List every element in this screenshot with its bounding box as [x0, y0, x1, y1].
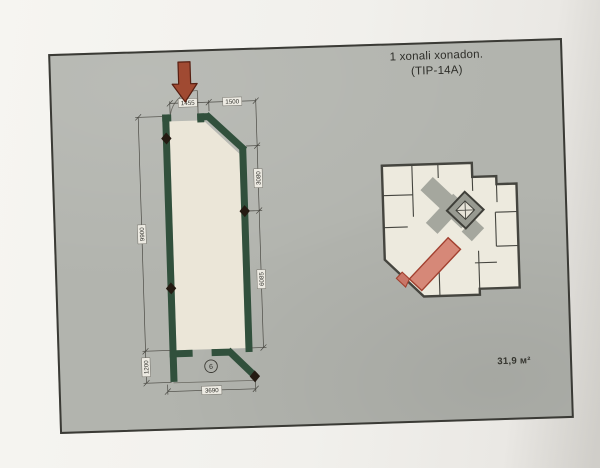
area-label: 31,9 м² — [472, 354, 556, 368]
dimension-label-bottom: 3690 — [205, 387, 220, 394]
photo-background: 1 xonali xonadon. (TIP-14A) — [0, 0, 600, 468]
room-number: 6 — [209, 364, 213, 371]
key-plan — [376, 151, 531, 306]
dimension-label-left-balcony: 1200 — [143, 360, 150, 375]
entrance-arrow-icon — [171, 62, 197, 103]
dimension-label-right-upper: 3080 — [255, 171, 262, 186]
dimension-label-top-right: 1500 — [225, 98, 240, 105]
dimension-label-right-lower: 6085 — [258, 272, 265, 287]
page-title: 1 xonali xonadon. (TIP-14A) — [351, 46, 522, 80]
dimension-label-left-main: 9900 — [139, 227, 146, 242]
drawing-sheet: 1 xonali xonadon. (TIP-14A) — [48, 38, 574, 434]
dimension-label-top-left: 1455 — [181, 100, 196, 107]
balcony-edge — [174, 380, 255, 383]
apartment-floor — [169, 119, 245, 350]
room-number-badge: 6 — [205, 360, 218, 373]
door-leaf — [197, 90, 198, 115]
main-floor-plan: 1455 1500 3080 6085 9900 1200 3690 6 — [121, 57, 272, 411]
